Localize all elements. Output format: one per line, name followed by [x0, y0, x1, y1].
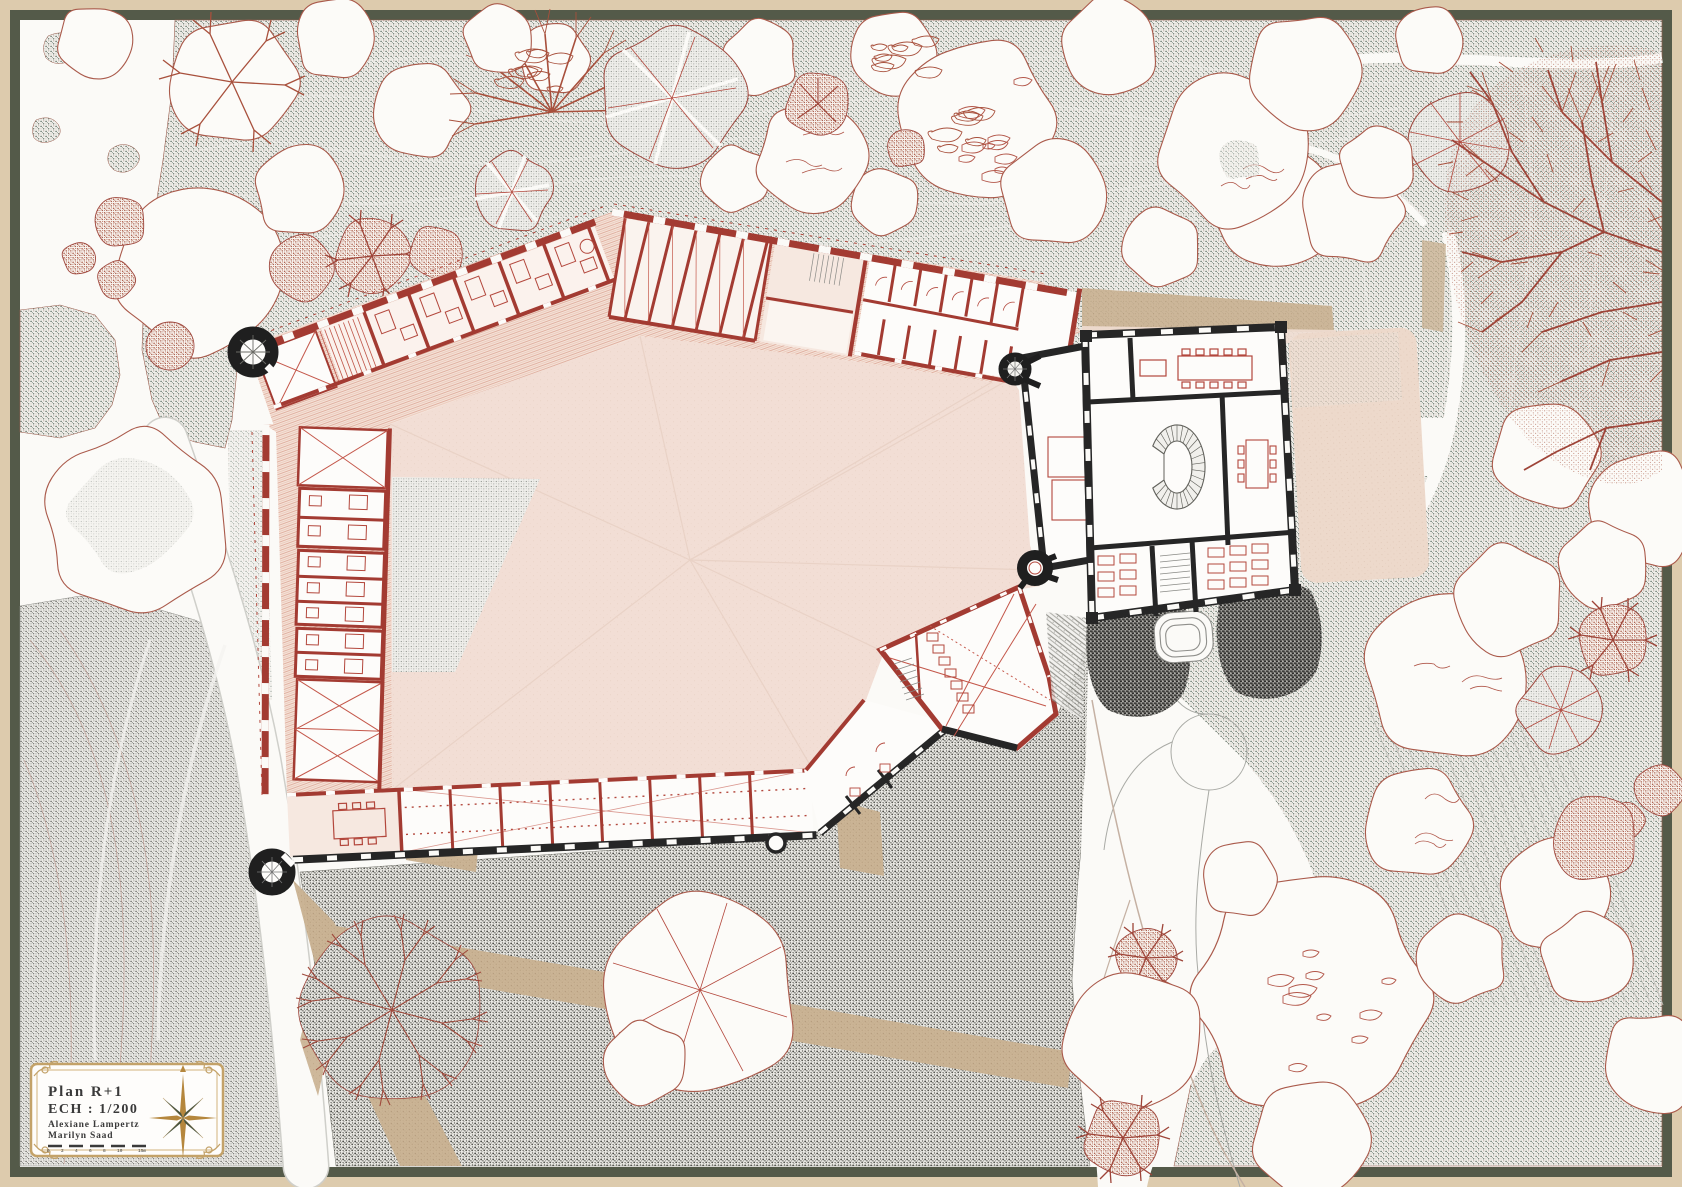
svg-text:6: 6	[89, 1148, 92, 1154]
svg-text:0: 0	[47, 1148, 50, 1154]
svg-text:Plan R+1: Plan R+1	[48, 1084, 124, 1100]
svg-text:2: 2	[61, 1148, 64, 1154]
svg-text:8: 8	[103, 1148, 106, 1154]
svg-text:ECH : 1/200: ECH : 1/200	[48, 1102, 138, 1117]
svg-text:Alexiane Lampertz: Alexiane Lampertz	[48, 1120, 139, 1130]
svg-text:10: 10	[117, 1148, 123, 1154]
svg-text:4: 4	[75, 1148, 78, 1154]
svg-text:Marilyn Saad: Marilyn Saad	[48, 1131, 113, 1141]
svg-text:15m: 15m	[138, 1148, 146, 1154]
